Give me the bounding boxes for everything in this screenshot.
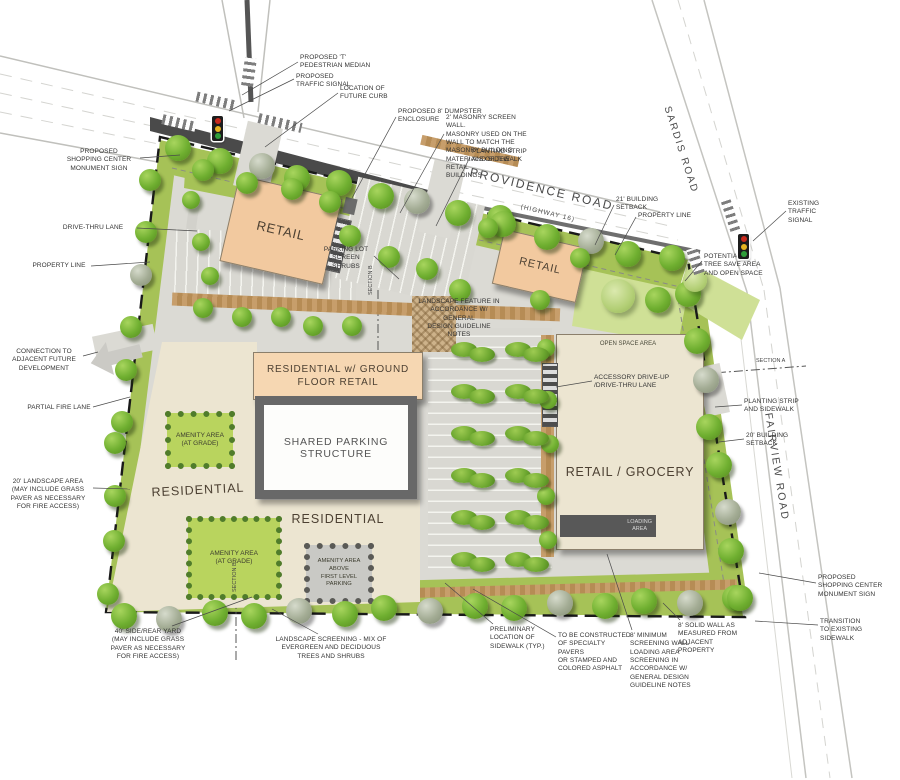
leader-line [607, 554, 632, 630]
leader-line [719, 439, 744, 442]
leader-line [759, 573, 816, 583]
leader-line [556, 381, 592, 387]
callout-landscape_feature: LANDSCAPE FEATURE IN ACCORDANCE W/ GENER… [418, 298, 500, 340]
callout-setback21: 21' BUILDING SETBACK [616, 196, 672, 213]
leader-line [93, 488, 130, 489]
callout-setback20_right: 20' BUILDING SETBACK [746, 432, 798, 449]
leader-line [595, 205, 614, 245]
leader-line [685, 261, 702, 281]
callout-monument_se: PROPOSED SHOPPING CENTER MONUMENT SIGN [818, 574, 892, 599]
callout-landscape20: 20' LANDSCAPE AREA (MAY INCLUDE GRASS PA… [4, 478, 92, 511]
callout-solidwall8: 8' SOLID WALL AS MEASURED FROM ADJACENT … [678, 622, 746, 655]
leader-line [172, 597, 252, 626]
leader-line [265, 93, 338, 147]
leader-line [715, 405, 742, 407]
leader-line [137, 228, 197, 231]
callout-partial_fire: PARTIAL FIRE LANE [26, 404, 92, 412]
callout-monument_nw: PROPOSED SHOPPING CENTER MONUMENT SIGN [58, 148, 140, 173]
leader-line [272, 609, 318, 634]
callout-tree_save: POTENTIAL TREE SAVE AREA AND OPEN SPACE [704, 253, 766, 278]
leader-line [753, 211, 786, 241]
callout-sideyard40: 40' SIDE/REAR YARD (MAY INCLUDE GRASS PA… [98, 628, 198, 661]
leader-line [83, 352, 98, 356]
proposed-traffic-signal-icon [212, 116, 223, 141]
existing-traffic-signal-icon [738, 234, 749, 259]
callout-property_line_e: PROPERTY LINE [638, 212, 698, 220]
leader-line [663, 603, 680, 620]
callout-sidewalk_typ: PRELIMINARY LOCATION OF SIDEWALK (TYP.) [490, 626, 552, 651]
callout-existing_signal: EXISTING TRAFFIC SIGNAL [788, 200, 834, 225]
callout-landscape_screening: LANDSCAPE SCREENING - MIX OF EVERGREEN A… [272, 636, 390, 661]
site-plan-canvas: RETAIL RETAIL RESIDENTIAL w/ GROUND FLOO… [0, 0, 900, 780]
callout-accessory: ACCESSORY DRIVE-UP /DRIVE-THRU LANE [594, 374, 670, 391]
callout-pavers_note: TO BE CONSTRUCTED OF SPECIALTY PAVERS OR… [558, 632, 632, 674]
callout-parking_screen: PARKING LOT SCREEN SHRUBS [318, 246, 374, 271]
leader-line [242, 62, 298, 95]
leader-line [755, 621, 818, 625]
callout-t_median: PROPOSED 'T' PEDESTRIAN MEDIAN [300, 54, 388, 71]
callout-drive_thru: DRIVE-THRU LANE [50, 224, 136, 232]
leader-line [91, 262, 150, 266]
leader-line [352, 117, 396, 198]
leader-line [140, 155, 180, 158]
callout-future_curb: LOCATION OF FUTURE CURB [340, 85, 412, 102]
leader-line [374, 256, 399, 279]
callout-connection: CONNECTION TO ADJACENT FUTURE DEVELOPMEN… [6, 348, 82, 373]
leader-line [615, 217, 636, 255]
callout-planting_top: PLANTING STRIP AND SIDEWALK [472, 148, 536, 165]
leader-line [93, 397, 130, 407]
leader-line [445, 583, 493, 624]
callout-transition: TRANSITION TO EXISTING SIDEWALK [820, 618, 878, 643]
callout-property_line_w: PROPERTY LINE [28, 262, 90, 270]
leader-line [400, 134, 444, 213]
callout-planting_right: PLANTING STRIP AND SIDEWALK [744, 398, 804, 415]
